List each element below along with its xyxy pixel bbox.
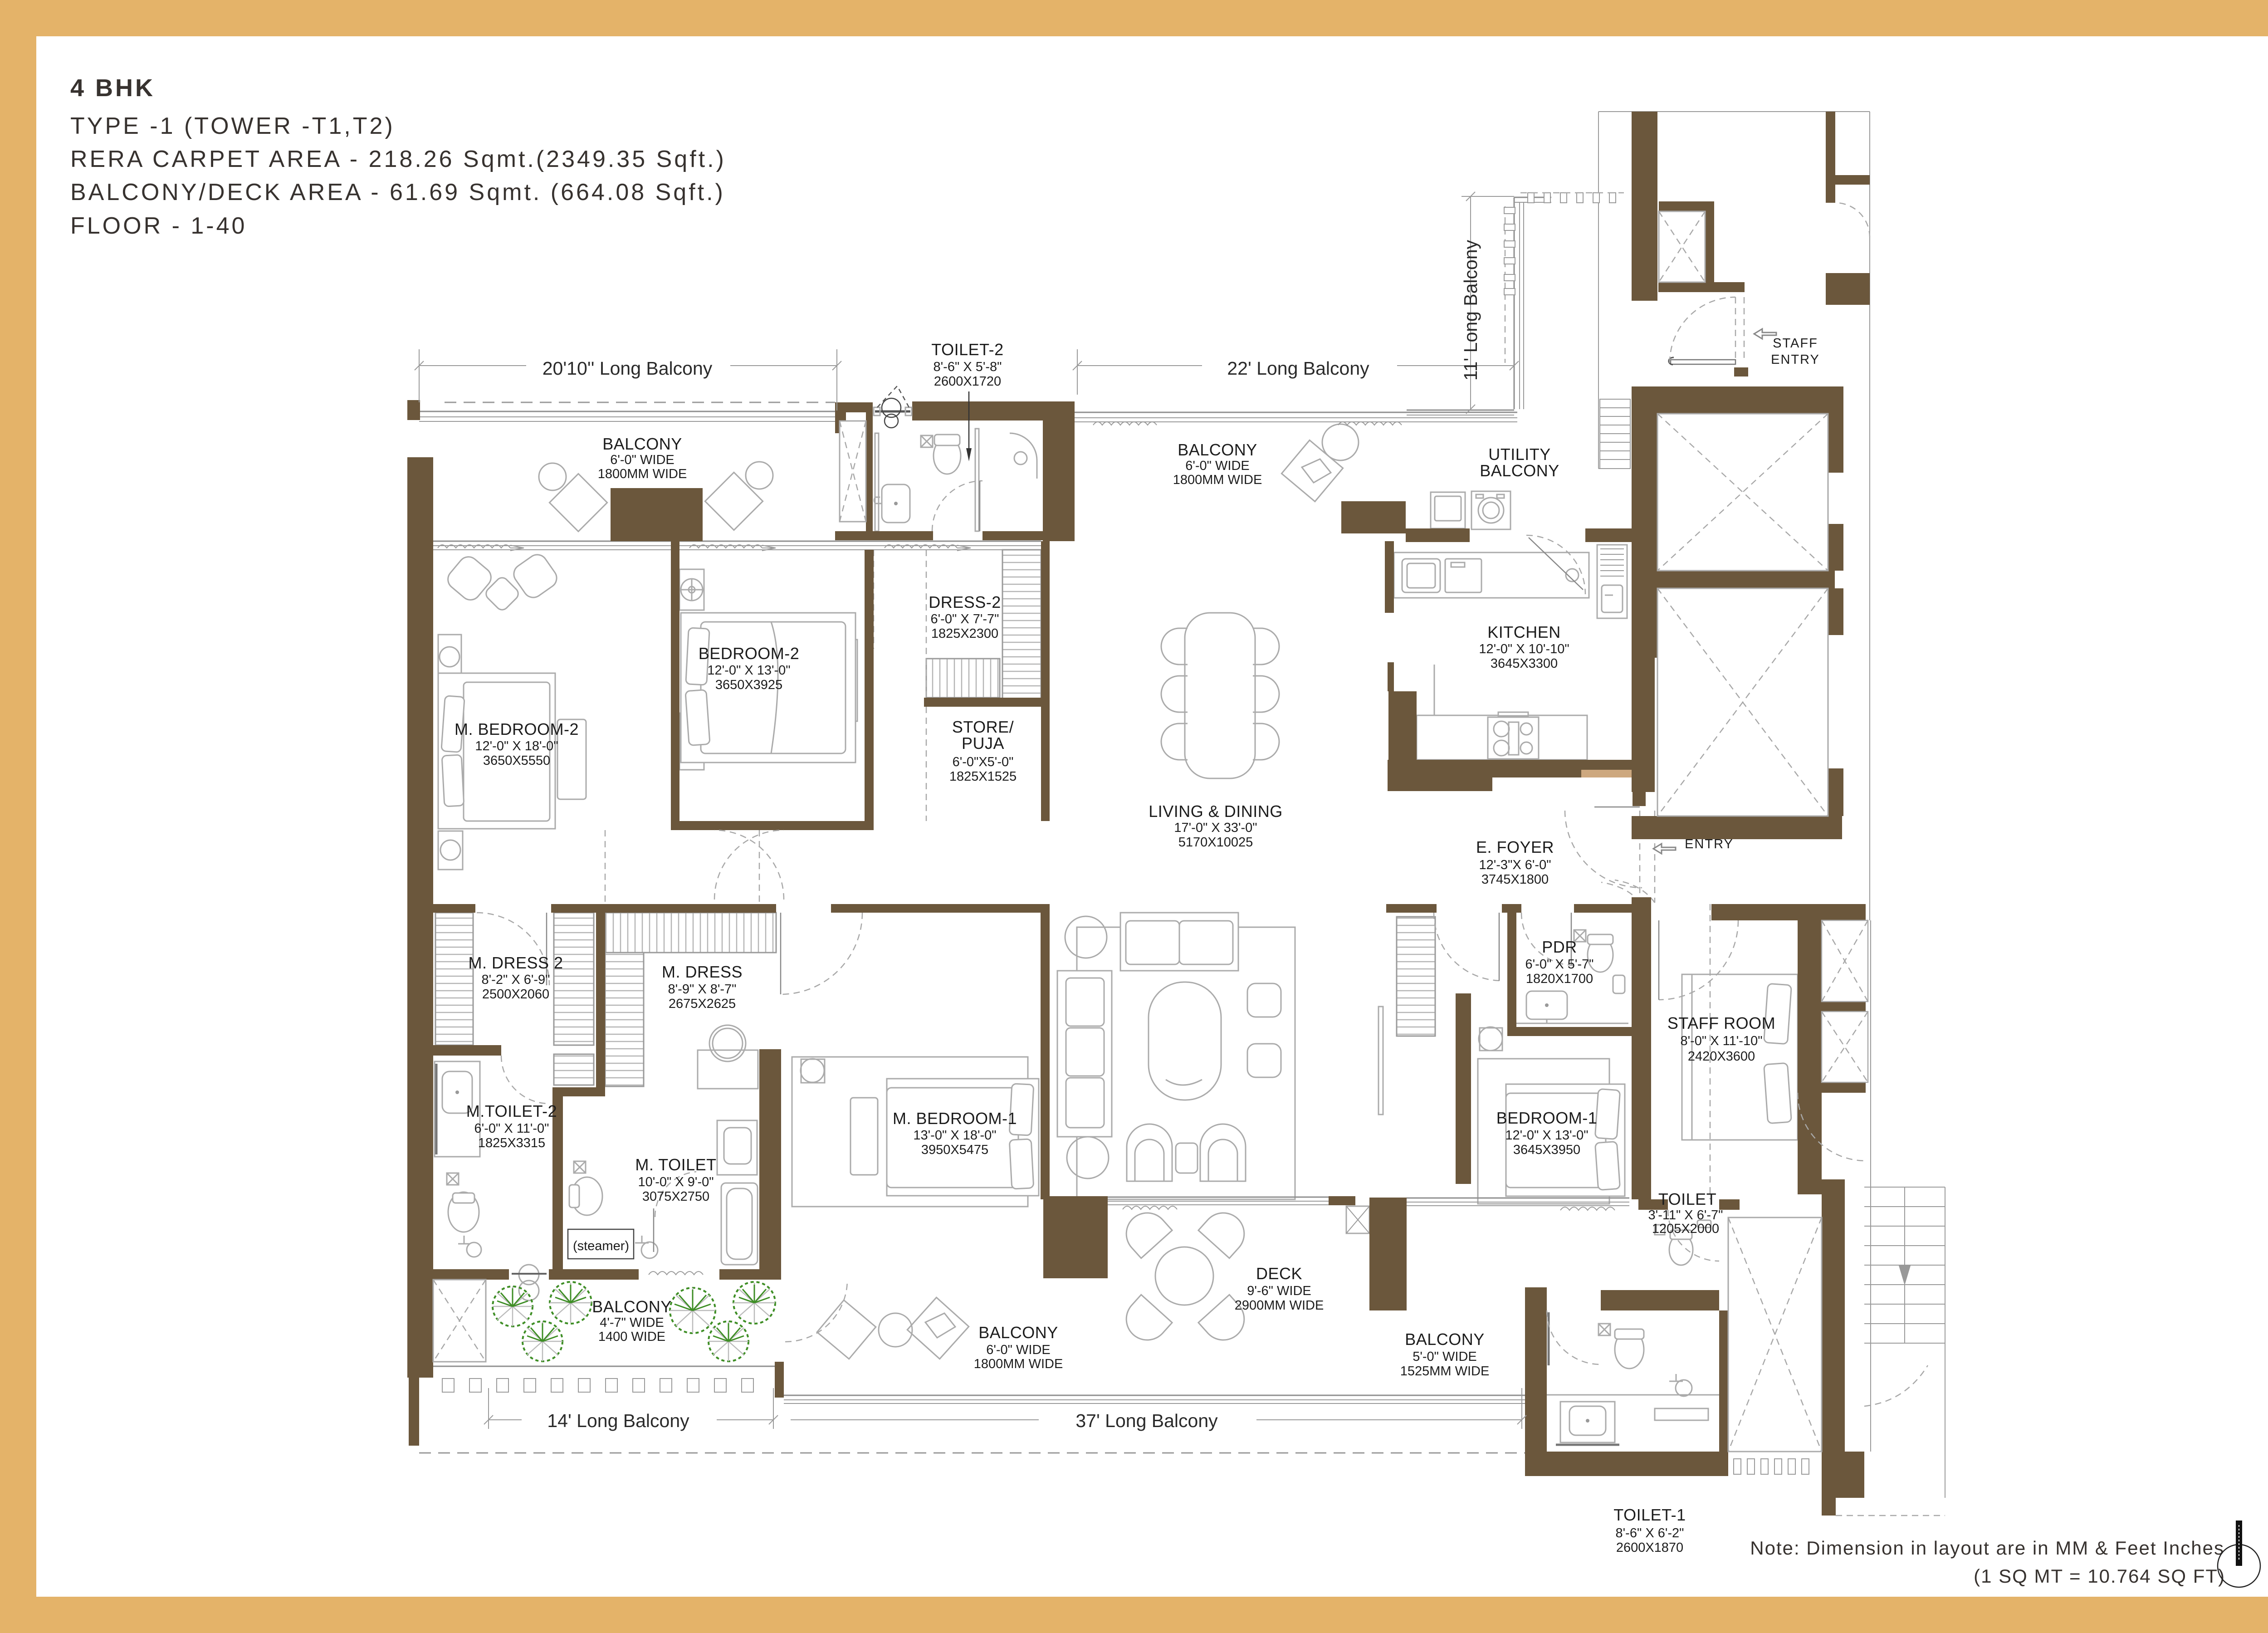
- svg-text:STAFF: STAFF: [1773, 336, 1818, 351]
- svg-text:3950X5475: 3950X5475: [921, 1143, 988, 1157]
- svg-text:6'-0" X 7'-7": 6'-0" X 7'-7": [931, 612, 999, 626]
- svg-text:12'-0" X 13'-0": 12'-0" X 13'-0": [1505, 1128, 1588, 1143]
- svg-text:BALCONY: BALCONY: [1405, 1330, 1485, 1349]
- svg-text:(steamer): (steamer): [573, 1239, 629, 1253]
- svg-text:BALCONY: BALCONY: [978, 1323, 1058, 1342]
- svg-text:1825X2300: 1825X2300: [931, 626, 998, 641]
- svg-text:6'-0" X 11'-0": 6'-0" X 11'-0": [474, 1121, 549, 1136]
- svg-text:6'-0" WIDE: 6'-0" WIDE: [1185, 459, 1250, 473]
- svg-text:11' Long Balcony: 11' Long Balcony: [1460, 240, 1481, 381]
- svg-text:3075X2750: 3075X2750: [642, 1189, 709, 1204]
- svg-text:3745X1800: 3745X1800: [1481, 872, 1549, 887]
- svg-text:1205X2000: 1205X2000: [1652, 1222, 1719, 1236]
- svg-text:22' Long Balcony: 22' Long Balcony: [1227, 358, 1369, 379]
- svg-text:8'-0" X 11'-10": 8'-0" X 11'-10": [1680, 1034, 1762, 1048]
- svg-text:12'-0" X 18'-0": 12'-0" X 18'-0": [475, 739, 558, 753]
- svg-text:20'10'' Long Balcony: 20'10'' Long Balcony: [543, 358, 713, 379]
- svg-text:1825X3315: 1825X3315: [478, 1136, 545, 1150]
- svg-text:BALCONY: BALCONY: [602, 435, 682, 453]
- svg-text:M.TOILET-2: M.TOILET-2: [466, 1102, 557, 1120]
- svg-text:2900MM WIDE: 2900MM WIDE: [1235, 1298, 1324, 1313]
- svg-text:TOILET-1: TOILET-1: [1613, 1506, 1686, 1524]
- svg-text:8'-9" X 8'-7": 8'-9" X 8'-7": [668, 982, 737, 997]
- svg-text:3650X3925: 3650X3925: [715, 678, 782, 692]
- svg-text:5170X10025: 5170X10025: [1178, 835, 1253, 850]
- svg-text:2600X1720: 2600X1720: [934, 374, 1001, 389]
- svg-text:LIVING & DINING: LIVING & DINING: [1149, 802, 1283, 821]
- svg-text:12'-3"X 6'-0": 12'-3"X 6'-0": [1479, 858, 1551, 872]
- svg-text:8'-2" X 6'-9": 8'-2" X 6'-9": [482, 973, 550, 987]
- svg-text:4'-7" WIDE: 4'-7" WIDE: [600, 1315, 664, 1330]
- svg-text:TOILET-2: TOILET-2: [931, 340, 1003, 359]
- svg-text:ENTRY: ENTRY: [1771, 352, 1820, 367]
- svg-text:2420X3600: 2420X3600: [1688, 1049, 1755, 1064]
- svg-text:2600X1870: 2600X1870: [1616, 1540, 1683, 1555]
- svg-text:2500X2060: 2500X2060: [482, 987, 549, 1002]
- svg-text:BEDROOM-1: BEDROOM-1: [1496, 1109, 1598, 1127]
- svg-text:Note: Dimension in layout are: Note: Dimension in layout are in MM & Fe…: [1750, 1537, 2224, 1559]
- svg-text:1820X1700: 1820X1700: [1526, 972, 1593, 986]
- svg-text:1800MM WIDE: 1800MM WIDE: [974, 1357, 1063, 1371]
- svg-text:9'-6" WIDE: 9'-6" WIDE: [1247, 1284, 1311, 1298]
- svg-text:RERA CARPET AREA - 218.26 Sqmt: RERA CARPET AREA - 218.26 Sqmt.(2349.35 …: [70, 146, 726, 172]
- svg-text:ENTRY: ENTRY: [1685, 837, 1734, 851]
- svg-text:4 BHK: 4 BHK: [70, 74, 155, 102]
- svg-text:STORE/: STORE/: [952, 718, 1014, 736]
- svg-text:FLOOR - 1-40: FLOOR - 1-40: [70, 213, 247, 239]
- svg-text:TYPE -1 (TOWER -T1,T2): TYPE -1 (TOWER -T1,T2): [70, 113, 395, 139]
- svg-text:3645X3950: 3645X3950: [1513, 1143, 1580, 1157]
- svg-text:10'-0" X 9'-0": 10'-0" X 9'-0": [638, 1175, 714, 1189]
- svg-text:STAFF ROOM: STAFF ROOM: [1667, 1014, 1775, 1032]
- svg-text:1800MM WIDE: 1800MM WIDE: [1173, 473, 1262, 487]
- svg-text:KITCHEN: KITCHEN: [1487, 623, 1561, 641]
- svg-text:17'-0" X 33'-0": 17'-0" X 33'-0": [1174, 821, 1257, 835]
- svg-text:PUJA: PUJA: [962, 734, 1004, 753]
- svg-text:BEDROOM-2: BEDROOM-2: [699, 644, 800, 663]
- svg-text:1825X1525: 1825X1525: [949, 769, 1017, 784]
- svg-text:PDR: PDR: [1542, 938, 1577, 956]
- svg-text:M. BEDROOM-2: M. BEDROOM-2: [455, 720, 579, 738]
- svg-text:TOILET: TOILET: [1658, 1190, 1716, 1208]
- svg-text:BALCONY/DECK AREA - 61.69 Sqmt: BALCONY/DECK AREA - 61.69 Sqmt. (664.08 …: [70, 179, 725, 205]
- svg-text:E. FOYER: E. FOYER: [1476, 838, 1554, 856]
- svg-text:5'-0" WIDE: 5'-0" WIDE: [1413, 1349, 1477, 1364]
- svg-text:6'-0" WIDE: 6'-0" WIDE: [986, 1343, 1051, 1357]
- svg-text:M. BEDROOM-1: M. BEDROOM-1: [893, 1109, 1017, 1128]
- svg-text:(1 SQ MT = 10.764 SQ FT): (1 SQ MT = 10.764 SQ FT): [1974, 1565, 2225, 1587]
- svg-text:3'-11" X 6'-7": 3'-11" X 6'-7": [1648, 1208, 1723, 1222]
- svg-text:12'-0" X 10'-10": 12'-0" X 10'-10": [1479, 642, 1569, 656]
- svg-text:8'-6" X 5'-8": 8'-6" X 5'-8": [934, 360, 1002, 374]
- svg-text:6'-0"X5'-0": 6'-0"X5'-0": [953, 755, 1014, 769]
- svg-text:3645X3300: 3645X3300: [1491, 656, 1558, 671]
- svg-text:13'-0" X 18'-0": 13'-0" X 18'-0": [913, 1128, 996, 1143]
- svg-text:M. DRESS 2: M. DRESS 2: [468, 953, 563, 972]
- svg-text:12'-0" X 13'-0": 12'-0" X 13'-0": [707, 663, 790, 678]
- svg-text:M. DRESS: M. DRESS: [662, 963, 743, 981]
- svg-text:M. TOILET: M. TOILET: [635, 1155, 716, 1174]
- svg-text:1400 WIDE: 1400 WIDE: [598, 1330, 665, 1344]
- svg-text:BALCONY: BALCONY: [592, 1297, 672, 1316]
- svg-text:14' Long Balcony: 14' Long Balcony: [547, 1410, 689, 1431]
- svg-text:BALCONY: BALCONY: [1480, 461, 1559, 480]
- svg-text:1800MM WIDE: 1800MM WIDE: [598, 467, 687, 481]
- svg-text:DECK: DECK: [1256, 1264, 1302, 1283]
- svg-text:6'-0" X 5'-7": 6'-0" X 5'-7": [1525, 957, 1594, 972]
- svg-text:BALCONY: BALCONY: [1178, 440, 1257, 459]
- svg-text:6'-0" WIDE: 6'-0" WIDE: [610, 453, 675, 467]
- svg-text:37' Long Balcony: 37' Long Balcony: [1075, 1410, 1218, 1431]
- svg-text:DRESS-2: DRESS-2: [929, 593, 1001, 611]
- svg-text:UTILITY: UTILITY: [1488, 445, 1551, 464]
- svg-text:2675X2625: 2675X2625: [669, 997, 736, 1011]
- svg-text:1525MM WIDE: 1525MM WIDE: [1400, 1364, 1490, 1379]
- svg-text:8'-6" X 6'-2": 8'-6" X 6'-2": [1616, 1526, 1684, 1540]
- svg-text:3650X5550: 3650X5550: [483, 753, 550, 768]
